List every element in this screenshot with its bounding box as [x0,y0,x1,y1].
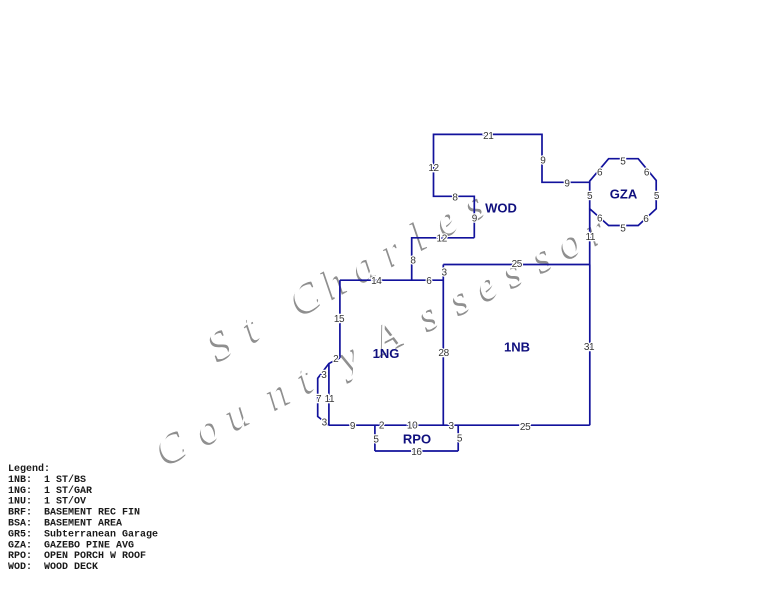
svg-text:10: 10 [407,421,418,432]
svg-text:1NB: 1NB [504,340,530,355]
svg-text:5: 5 [587,191,593,202]
svg-text:1NG: 1 ST/GAR: 1NG: 1 ST/GAR [8,485,92,497]
svg-text:9: 9 [564,178,570,189]
svg-text:14: 14 [371,276,382,287]
svg-text:9: 9 [350,421,356,432]
svg-text:6: 6 [426,276,432,287]
svg-text:BRF: BASEMENT REC FIN: BRF: BASEMENT REC FIN [8,508,140,519]
svg-text:5: 5 [654,191,660,202]
svg-text:BSA: BASEMENT AREA: BSA: BASEMENT AREA [8,519,122,530]
svg-text:3: 3 [322,417,328,428]
svg-text:9: 9 [540,156,546,167]
svg-text:6: 6 [597,167,603,178]
svg-text:9: 9 [472,214,478,225]
svg-text:RPO: RPO [403,432,431,447]
svg-text:RPO: OPEN PORCH W ROOF: RPO: OPEN PORCH W ROOF [8,551,146,562]
svg-text:1NU: 1 ST/OV: 1NU: 1 ST/OV [8,496,86,508]
svg-text:11: 11 [586,232,596,243]
svg-text:3: 3 [321,370,327,381]
svg-text:28: 28 [438,348,449,359]
svg-text:5: 5 [620,156,626,167]
svg-text:6: 6 [643,214,649,225]
svg-text:WOD: WOD [485,201,517,216]
svg-text:25: 25 [520,422,531,433]
svg-text:8: 8 [410,256,416,267]
svg-text:5: 5 [620,224,626,235]
svg-text:2: 2 [379,421,385,432]
svg-text:21: 21 [483,131,494,142]
svg-text:15: 15 [334,314,345,325]
svg-text:GR5: Subterranean Garage: GR5: Subterranean Garage [8,528,158,540]
svg-text:12: 12 [428,163,439,174]
svg-text:31: 31 [584,342,595,353]
svg-text:GZA: GAZEBO PINE AVG: GZA: GAZEBO PINE AVG [8,540,134,551]
svg-text:2: 2 [333,354,339,365]
svg-text:1NG: 1NG [373,346,400,361]
svg-text:3: 3 [449,421,455,432]
svg-text:5: 5 [457,434,463,445]
svg-text:5: 5 [373,435,379,446]
svg-text:6: 6 [644,167,650,178]
svg-text:16: 16 [411,447,422,458]
svg-text:1NB: 1 ST/BS: 1NB: 1 ST/BS [8,474,86,486]
svg-text:25: 25 [512,259,523,270]
svg-text:11: 11 [325,394,335,405]
svg-text:WOD: WOOD DECK: WOD: WOOD DECK [8,562,98,573]
svg-text:7: 7 [316,394,322,405]
svg-text:3: 3 [442,268,448,279]
svg-text:GZA: GZA [610,186,638,201]
svg-text:Legend:: Legend: [8,463,50,475]
svg-text:6: 6 [597,213,603,224]
svg-text:12: 12 [437,234,448,245]
svg-text:8: 8 [452,193,458,204]
